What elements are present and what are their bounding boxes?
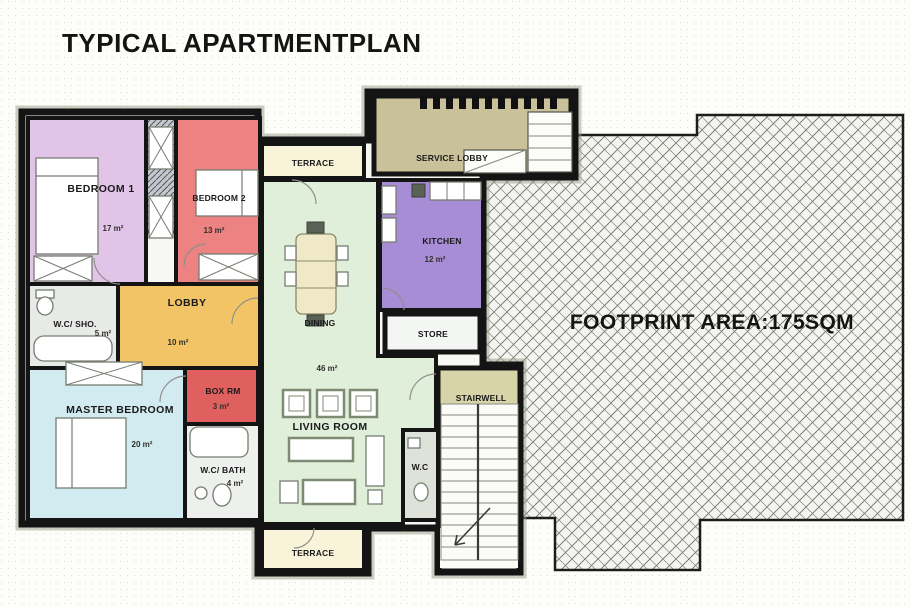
kitchen-area: 12 m² (425, 255, 446, 264)
dining-label: DINING (305, 318, 336, 328)
living-area-value: 46 m² (317, 364, 338, 373)
wc-shower-bathtub-icon (34, 336, 112, 361)
footprint-label: FOOTPRINT AREA:175SQM (570, 311, 854, 334)
bedroom1-label: BEDROOM 1 (67, 183, 134, 195)
terrace-top-label: TERRACE (292, 158, 335, 168)
stairwell-treads-icon (441, 404, 518, 560)
room-wc-small: W.C (403, 430, 438, 520)
bedroom2-area: 13 m² (204, 226, 225, 235)
wc-small-toilet-icon (414, 483, 428, 501)
bedroom2-wardrobe-icon (199, 254, 258, 280)
floor-plan-page: TYPICAL APARTMENTPLAN FOOTPRINT AREA:175… (0, 0, 910, 607)
wc-shower-area: 5 m² (95, 329, 112, 338)
master-wardrobe-icon (66, 362, 142, 385)
room-service-lobby: SERVICE LOBBY (374, 95, 572, 174)
wc-shower-toilet-icon (36, 290, 54, 315)
living-armchairs-icon (283, 390, 377, 417)
kitchen-label: KITCHEN (422, 236, 461, 246)
room-kitchen: KITCHEN 12 m² (380, 180, 483, 310)
lobby-label: LOBBY (168, 297, 207, 309)
bedrooms-closet-strip (146, 118, 176, 238)
wc-small-label: W.C (412, 462, 429, 472)
room-lobby: LOBBY 10 m² (118, 284, 260, 368)
lobby-area: 10 m² (168, 338, 189, 347)
bedroom1-area: 17 m² (103, 224, 124, 233)
room-bedroom2: BEDROOM 2 13 m² (176, 118, 260, 284)
terrace-bottom-label: TERRACE (292, 548, 335, 558)
room-wc-bath: W.C/ BATH 4 m² (185, 424, 260, 520)
wc-bath-bathtub-icon (190, 427, 248, 457)
wc-bath-area: 4 m² (227, 479, 244, 488)
master-bedroom-area: 20 m² (132, 440, 153, 449)
room-wc-shower: W.C/ SHO. 5 m² (28, 284, 118, 368)
bedroom2-label: BEDROOM 2 (192, 193, 245, 203)
master-bed (56, 418, 126, 488)
store-label: STORE (418, 329, 448, 339)
wc-bath-label: W.C/ BATH (200, 465, 246, 475)
room-stairwell: STAIRWELL (438, 368, 520, 568)
room-store: STORE (385, 314, 480, 352)
room-master-bedroom: MASTER BEDROOM 20 m² (28, 362, 185, 520)
living-room-label: LIVING ROOM (293, 421, 368, 433)
box-room-label: BOX RM (205, 386, 240, 396)
wc-shower-label: W.C/ SHO. (53, 319, 96, 329)
box-room-floor (185, 368, 258, 424)
room-terrace-top: TERRACE (262, 144, 364, 178)
wc-small-sink-icon (408, 438, 420, 448)
service-lobby-label: SERVICE LOBBY (416, 153, 488, 163)
floor-plan-drawing: TYPICAL APARTMENTPLAN FOOTPRINT AREA:175… (0, 0, 910, 607)
stairwell-label: STAIRWELL (456, 393, 507, 403)
room-bedroom1: BEDROOM 1 17 m² (28, 118, 146, 284)
bedroom1-wardrobe-icon (34, 256, 92, 281)
room-box: BOX RM 3 m² (185, 368, 258, 424)
box-room-area: 3 m² (213, 402, 230, 411)
wc-bath-sink-icon (195, 487, 207, 499)
page-title: TYPICAL APARTMENTPLAN (62, 28, 422, 58)
master-bedroom-label: MASTER BEDROOM (66, 404, 174, 416)
bedroom1-bed (36, 158, 98, 254)
